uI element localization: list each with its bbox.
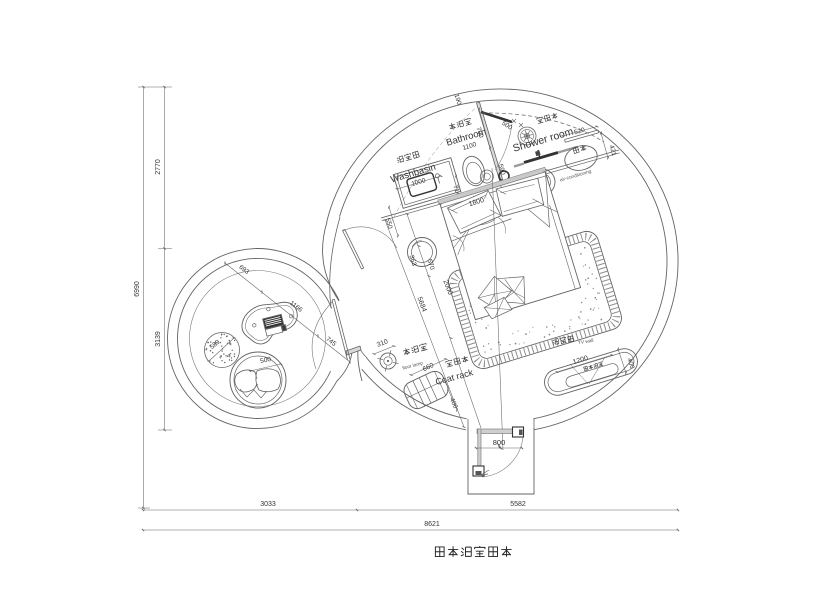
svg-text:6990: 6990 (134, 281, 141, 297)
svg-text:5582: 5582 (510, 501, 526, 508)
svg-text:3139: 3139 (155, 331, 162, 347)
svg-text:800: 800 (493, 438, 506, 447)
svg-text:8621: 8621 (424, 521, 440, 528)
svg-text:3033: 3033 (260, 501, 276, 508)
svg-text:2770: 2770 (155, 159, 162, 175)
